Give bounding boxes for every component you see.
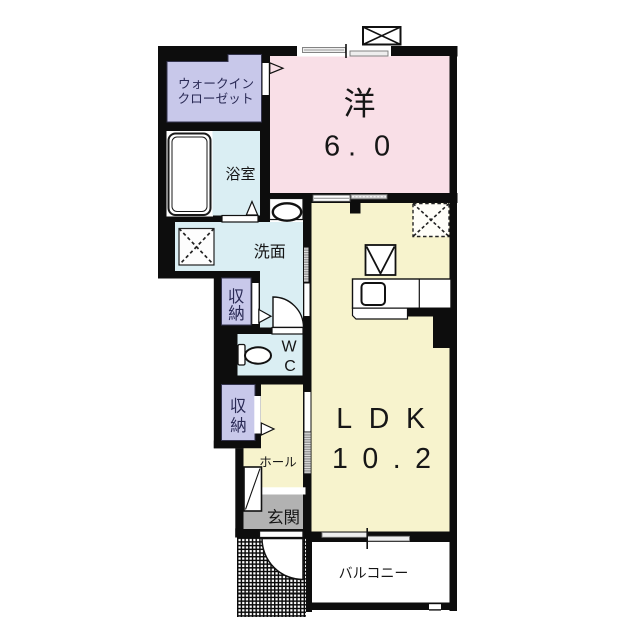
svg-text:収: 収 xyxy=(230,397,247,416)
svg-text:C: C xyxy=(284,358,296,375)
svg-text:納: 納 xyxy=(230,416,247,435)
svg-text:洗面: 洗面 xyxy=(254,243,286,261)
svg-text:6: 6 xyxy=(324,131,340,163)
svg-text:ウォークイン: ウォークイン xyxy=(178,77,254,91)
svg-text:W: W xyxy=(281,339,297,356)
svg-text:ホール: ホール xyxy=(259,456,297,470)
svg-text:納: 納 xyxy=(228,304,245,323)
svg-text:10.2: 10.2 xyxy=(332,443,445,475)
svg-text:クローゼット: クローゼット xyxy=(177,92,253,106)
svg-text:浴室: 浴室 xyxy=(225,166,255,183)
svg-text:LDK: LDK xyxy=(336,403,442,435)
svg-text:バルコニー: バルコニー xyxy=(339,565,409,581)
svg-text:.: . xyxy=(348,131,356,163)
svg-text:収: 収 xyxy=(228,287,245,306)
svg-text:0: 0 xyxy=(374,131,390,163)
svg-text:洋: 洋 xyxy=(343,86,375,122)
svg-text:玄関: 玄関 xyxy=(267,508,300,527)
